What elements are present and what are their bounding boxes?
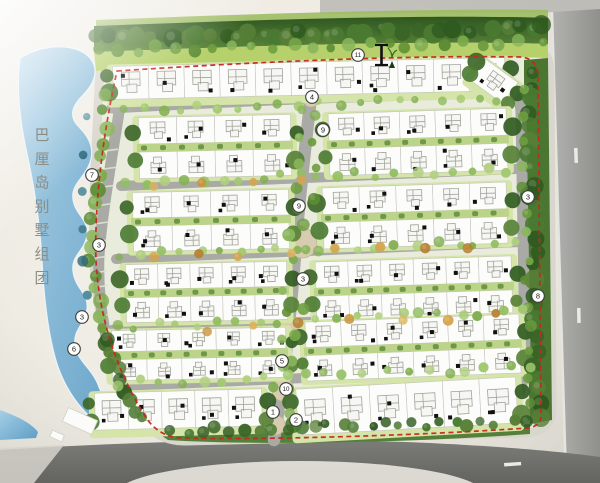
- tree-highlight: [349, 423, 354, 428]
- unit-marker-square: [182, 312, 186, 316]
- unit-marker-square: [504, 268, 508, 272]
- villa-footprint-wing: [328, 301, 336, 308]
- hedge-bush: [135, 219, 141, 224]
- unit-marker-square: [313, 68, 317, 72]
- villa-footprint-wing: [450, 125, 458, 132]
- unit-marker-square: [128, 363, 132, 367]
- tree: [532, 15, 551, 34]
- villa-footprint-wing: [234, 82, 244, 90]
- hedge-bush: [349, 141, 355, 146]
- unit-marker-square: [368, 239, 372, 243]
- unit-marker-square: [353, 208, 357, 212]
- villa-footprint-wing: [127, 84, 137, 92]
- unit-marker-square: [102, 419, 106, 423]
- tree: [282, 307, 292, 317]
- tree: [301, 368, 311, 378]
- villa-footprint-wing: [198, 82, 208, 90]
- tree: [94, 150, 106, 162]
- unit-marker-square: [371, 131, 375, 135]
- tree: [398, 42, 410, 54]
- unit-marker-square: [438, 86, 442, 90]
- unit-marker-square: [229, 280, 233, 284]
- marker-label: 7: [90, 170, 94, 179]
- unit-marker-square: [443, 149, 447, 153]
- tree-highlight: [235, 107, 238, 110]
- unit-marker-square: [263, 197, 267, 201]
- villa-footprint-wing: [384, 408, 395, 418]
- villa-footprint-wing: [498, 328, 506, 335]
- hedge-bush: [271, 350, 277, 355]
- hedge-bush: [451, 343, 457, 348]
- unit-marker-square: [323, 314, 327, 318]
- unit-marker-square: [436, 266, 440, 270]
- unit-marker-square: [415, 206, 419, 210]
- villa-footprint-wing: [188, 205, 196, 212]
- tree: [484, 20, 501, 37]
- tree: [326, 44, 335, 53]
- tree-highlight: [131, 327, 134, 330]
- tree: [99, 121, 114, 136]
- unit-marker-square: [158, 168, 162, 172]
- villa-footprint-wing: [329, 276, 337, 283]
- tree-highlight: [199, 180, 203, 184]
- unit-marker-square: [422, 225, 426, 229]
- tree: [463, 243, 473, 253]
- tree: [394, 25, 410, 41]
- tree: [287, 249, 296, 258]
- tree: [97, 104, 108, 115]
- marker-label: 9: [297, 201, 301, 210]
- villa-footprint-wing: [195, 362, 201, 367]
- unit-marker-square: [407, 130, 411, 134]
- unit-marker-square: [372, 306, 376, 310]
- tree-highlight: [221, 177, 225, 181]
- unit-marker-square: [230, 88, 234, 92]
- tree: [469, 168, 477, 176]
- hedge-bush: [486, 342, 492, 347]
- tree: [389, 168, 398, 177]
- unit-marker-square: [130, 281, 134, 285]
- villa-footprint-wing: [355, 359, 363, 366]
- unit-marker-square: [209, 88, 213, 92]
- tree: [330, 243, 340, 253]
- tree: [519, 85, 529, 95]
- tree-highlight: [166, 427, 171, 432]
- unit-marker-square: [391, 326, 395, 330]
- tree: [249, 322, 257, 330]
- tree: [149, 182, 158, 191]
- tree-highlight: [406, 369, 410, 373]
- tree: [518, 305, 528, 315]
- hedge-bush: [490, 210, 496, 215]
- tree-highlight: [299, 220, 305, 226]
- unit-marker-square: [488, 410, 492, 414]
- plan-svg: 巴厘岛别墅组团: [0, 0, 600, 483]
- site-label: 巴厘岛别墅组团: [34, 127, 49, 287]
- hedge-bush: [465, 285, 471, 290]
- tree-highlight: [526, 314, 532, 320]
- hedge-bush: [402, 140, 408, 145]
- villa-footprint-wing: [337, 227, 345, 234]
- hedge-bush: [217, 144, 223, 149]
- tree-highlight: [102, 334, 109, 341]
- hedge-bush: [504, 341, 510, 346]
- tree: [472, 311, 482, 321]
- unit-marker-square: [185, 233, 189, 237]
- tree: [271, 244, 279, 252]
- villa-footprint-wing: [202, 301, 210, 307]
- hedge-bush: [438, 139, 444, 144]
- tree-highlight: [315, 247, 320, 252]
- tree-highlight: [434, 310, 438, 314]
- tree: [297, 175, 306, 184]
- unit-marker-square: [504, 357, 508, 361]
- tree: [511, 238, 519, 246]
- tree: [457, 95, 466, 104]
- site-label-char: 岛: [34, 175, 49, 192]
- villa-footprint-wing: [149, 206, 157, 213]
- tree-highlight: [522, 147, 530, 155]
- villa-footprint-wing: [174, 411, 184, 420]
- hedge-bush: [326, 348, 332, 353]
- tree-highlight: [157, 319, 161, 323]
- unit-marker-square: [262, 131, 266, 135]
- villa-footprint-wing: [203, 277, 211, 283]
- unit-marker-square: [370, 362, 374, 366]
- unit-marker-square: [258, 342, 262, 346]
- tree: [342, 38, 355, 51]
- tree-highlight: [527, 163, 533, 169]
- tree: [272, 99, 281, 108]
- tree: [113, 361, 127, 375]
- tree: [171, 320, 178, 327]
- villa-block: [110, 259, 301, 327]
- tree-highlight: [417, 40, 423, 46]
- tree: [243, 375, 251, 383]
- villa-footprint-wing: [392, 333, 400, 340]
- tree: [78, 187, 87, 196]
- tree: [83, 291, 92, 300]
- unit-marker-square: [133, 313, 137, 317]
- hedge-bush: [325, 216, 331, 221]
- tree-highlight: [248, 43, 252, 47]
- tree: [519, 137, 528, 146]
- unit-marker-square: [422, 363, 426, 367]
- hedge-bush: [141, 145, 147, 150]
- unit-marker-square: [406, 70, 410, 74]
- circle-marker-8: 8: [532, 290, 545, 303]
- site-plan-canvas: 巴厘岛别墅组团: [0, 0, 600, 483]
- villa-footprint-wing: [230, 130, 238, 137]
- unit-marker-square: [188, 344, 192, 348]
- unit-marker-square: [222, 203, 226, 207]
- tree: [276, 170, 284, 178]
- tree-highlight: [534, 382, 540, 388]
- villa-footprint-wing: [192, 131, 200, 138]
- lane-dash: [574, 148, 578, 163]
- tree: [77, 256, 88, 267]
- tree: [175, 248, 182, 255]
- tree-highlight: [166, 31, 175, 40]
- unit-marker-square: [197, 277, 201, 281]
- hedge-bush: [149, 352, 155, 357]
- unit-marker-square: [232, 276, 236, 280]
- tree: [216, 247, 223, 254]
- marker-label: 6: [72, 344, 76, 353]
- villa-footprint-wing: [235, 276, 243, 282]
- hedge-bush: [253, 350, 259, 355]
- tree: [260, 372, 268, 380]
- villa-footprint-wing: [413, 151, 421, 158]
- tree: [213, 317, 222, 326]
- tree: [460, 419, 474, 433]
- villa-footprint-wing: [338, 202, 346, 209]
- tree: [413, 307, 424, 318]
- tree-highlight: [351, 168, 355, 172]
- tree: [375, 312, 383, 320]
- circle-marker-4: 4: [306, 91, 319, 104]
- villa-footprint-wing: [462, 354, 470, 361]
- tree: [99, 88, 112, 101]
- unit-marker-square: [487, 301, 491, 305]
- villa-footprint-wing: [161, 363, 167, 368]
- villa-footprint-wing: [447, 224, 455, 231]
- hedge-bush: [218, 351, 224, 356]
- hedge-bush: [400, 287, 406, 292]
- marker-label: 8: [536, 291, 540, 300]
- marker-label: 3: [80, 312, 84, 321]
- unit-marker-square: [370, 84, 374, 88]
- tree: [260, 175, 269, 184]
- circle-marker-3: 3: [76, 311, 89, 324]
- tree: [257, 319, 265, 327]
- circle-marker-1: 1: [267, 406, 280, 419]
- tree: [525, 398, 535, 408]
- hedge-bush: [166, 352, 172, 357]
- unit-marker-square: [119, 345, 123, 349]
- hedge-bush: [128, 291, 134, 296]
- tree: [159, 105, 170, 116]
- hedge-bush: [271, 217, 277, 222]
- hedge-bush: [361, 347, 367, 352]
- tree: [499, 306, 509, 316]
- lane-dash: [577, 308, 581, 323]
- tree-highlight: [375, 96, 379, 100]
- unit-marker-square: [238, 300, 242, 304]
- tree: [478, 41, 489, 52]
- unit-marker-square: [180, 404, 184, 408]
- villa-footprint-wing: [374, 226, 382, 233]
- circle-marker-9: 9: [317, 124, 330, 137]
- villa-footprint-wing: [305, 80, 315, 88]
- tree: [192, 101, 201, 110]
- hedge-bush: [362, 214, 368, 219]
- tree: [268, 382, 279, 393]
- hedge-bush: [383, 287, 389, 292]
- tree-highlight: [423, 424, 427, 428]
- hedge-bush: [379, 346, 385, 351]
- tree-highlight: [214, 106, 218, 110]
- tree: [88, 29, 101, 42]
- tree-highlight: [294, 319, 299, 324]
- unit-marker-square: [141, 244, 145, 248]
- villa-footprint-wing: [449, 150, 457, 157]
- unit-marker-square: [473, 200, 477, 204]
- unit-marker-square: [412, 128, 416, 132]
- hedge-bush: [274, 143, 280, 148]
- circle-marker-2: 2: [290, 414, 303, 427]
- villa-footprint-wing: [154, 132, 162, 139]
- tree: [227, 40, 237, 50]
- unit-marker-square: [454, 271, 458, 275]
- unit-marker-square: [210, 413, 214, 417]
- unit-marker-square: [202, 416, 206, 420]
- tree-highlight: [320, 369, 324, 373]
- unit-marker-square: [269, 367, 273, 371]
- marker-label: 1: [271, 407, 275, 416]
- circle-marker-5: 5: [276, 355, 289, 368]
- villa-footprint-wing: [269, 81, 279, 89]
- tree: [309, 420, 322, 433]
- tree: [101, 28, 117, 44]
- hedge-bush: [236, 143, 242, 148]
- marker-label: 10: [283, 386, 290, 393]
- tree: [297, 105, 306, 114]
- unit-marker-square: [163, 338, 167, 342]
- hedge-bush: [201, 351, 207, 356]
- tree: [365, 37, 376, 48]
- site-label-char: 巴: [34, 127, 49, 144]
- tree: [149, 252, 160, 263]
- hedge-bush: [473, 138, 479, 143]
- tree-highlight: [412, 97, 415, 100]
- villa-footprint-wing: [484, 222, 492, 229]
- hedge-bush: [154, 219, 160, 224]
- tree: [413, 167, 424, 178]
- hedge-bush: [193, 218, 199, 223]
- tree: [380, 22, 395, 37]
- tree-highlight: [426, 367, 430, 371]
- unit-marker-square: [371, 338, 375, 342]
- circle-marker-10: 10: [280, 383, 293, 396]
- tree: [430, 170, 439, 179]
- unit-marker-square: [163, 81, 167, 85]
- villa-footprint-wing: [170, 302, 178, 308]
- tree: [460, 367, 470, 377]
- villa-footprint-wing: [378, 152, 386, 159]
- marker-label: 3: [301, 274, 305, 283]
- tree: [406, 417, 416, 427]
- site-label-char: 组: [34, 246, 49, 263]
- hedge-bush: [252, 217, 258, 222]
- tree: [277, 334, 286, 343]
- unit-marker-square: [312, 335, 316, 339]
- tree: [234, 177, 242, 185]
- villa-footprint-wing: [148, 231, 156, 238]
- tree: [492, 97, 500, 105]
- tree: [155, 378, 162, 385]
- villa-footprint-wing: [231, 340, 237, 345]
- villa-footprint-wing: [463, 330, 471, 337]
- unit-marker-square: [219, 209, 223, 213]
- tree-highlight: [254, 104, 258, 108]
- tree: [283, 425, 294, 436]
- villa-footprint-wing: [411, 199, 419, 206]
- tree-highlight: [311, 112, 316, 117]
- hedge-bush: [225, 289, 231, 294]
- hedge-bush: [417, 213, 423, 218]
- unit-marker-square: [187, 201, 191, 205]
- tree-highlight: [142, 105, 146, 109]
- villa-footprint-wing: [427, 356, 435, 363]
- tree-highlight: [371, 245, 375, 249]
- tree: [385, 38, 395, 48]
- tree: [394, 421, 402, 429]
- unit-marker-square: [314, 373, 318, 377]
- unit-marker-square: [210, 370, 214, 374]
- tree: [78, 225, 86, 233]
- villa-footprint-wing: [342, 154, 350, 161]
- villa-footprint-wing: [492, 271, 500, 278]
- tree: [249, 178, 257, 186]
- tree: [194, 324, 201, 331]
- hedge-bush: [176, 290, 182, 295]
- unit-marker-square: [226, 228, 230, 232]
- villa-footprint-wing: [356, 334, 364, 341]
- tree: [159, 175, 170, 186]
- tree: [438, 96, 447, 105]
- tree: [353, 312, 361, 320]
- unit-marker-square: [224, 372, 228, 376]
- villa-footprint-wing: [343, 128, 351, 135]
- unit-marker-square: [464, 321, 468, 325]
- hedge-bush: [491, 137, 497, 142]
- unit-marker-square: [141, 210, 145, 214]
- tree-highlight: [359, 370, 363, 374]
- circle-marker-3: 3: [522, 191, 535, 204]
- hedge-bush: [208, 289, 214, 294]
- tree: [478, 362, 488, 372]
- unit-marker-square: [447, 202, 451, 206]
- hedge-bush: [232, 217, 238, 222]
- unit-marker-square: [184, 135, 188, 139]
- hedge-bush: [468, 343, 474, 348]
- unit-marker-square: [120, 414, 124, 418]
- tree-highlight: [540, 39, 544, 43]
- tree-highlight: [186, 430, 190, 434]
- tree: [388, 240, 398, 250]
- tree-highlight: [296, 134, 300, 138]
- unit-marker-square: [334, 235, 338, 239]
- tree: [449, 168, 457, 176]
- tree-highlight: [528, 69, 534, 75]
- tree: [434, 417, 443, 426]
- villa-footprint-wing: [230, 361, 236, 366]
- tree: [332, 314, 341, 323]
- villa-footprint-wing: [393, 299, 401, 306]
- site: 11497933336510812: [0, 10, 552, 444]
- tree-highlight: [494, 41, 500, 47]
- tree: [134, 48, 143, 57]
- villa-footprint-wing: [361, 300, 369, 307]
- tree: [457, 36, 468, 47]
- tree-highlight: [199, 428, 204, 433]
- unit-marker-square: [261, 279, 265, 283]
- tree: [491, 309, 500, 318]
- villa-footprint-wing: [494, 402, 505, 412]
- tree: [136, 375, 145, 384]
- unit-marker-square: [184, 341, 188, 345]
